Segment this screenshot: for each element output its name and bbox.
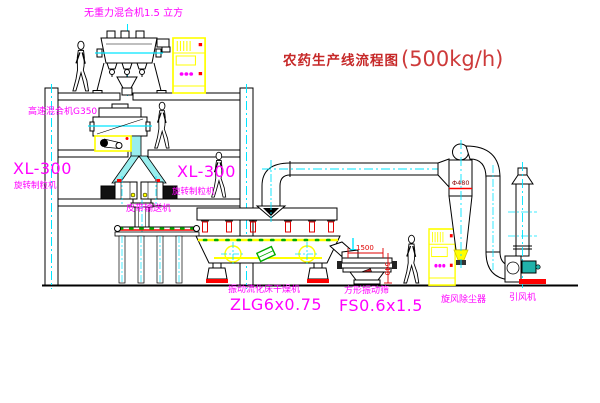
cyclone-diameter-annotation: Φ480 [452, 180, 470, 187]
sieve-length-dimension: 1500 [356, 245, 374, 252]
drawing-title: 农药生产线流程图(500kg/h) [283, 47, 503, 71]
label-second-mixer: 高速混合机G350 [28, 108, 97, 117]
zero-gravity-mixer [93, 24, 170, 96]
label-top-mixer: 无重力混合机1.5 立方 [84, 9, 183, 19]
fluid-bed-dryer [196, 208, 358, 283]
label-granulator-right-name: 旋转制粒机 [172, 188, 215, 197]
control-cabinet-ground [429, 229, 455, 285]
control-cabinet-upper [173, 38, 205, 93]
high-speed-mixer [88, 104, 152, 157]
label-belt-conveyor: 皮带输送机 [126, 205, 171, 214]
label-fan: 引风机 [509, 294, 536, 303]
sieve-height-dimension: 540 [383, 262, 390, 275]
belt-conveyor [115, 226, 200, 285]
title-text: 农药生产线流程图 [283, 49, 399, 69]
label-sieve-name: 方形振动筛 [344, 287, 389, 296]
label-dryer-model: ZLG6x0.75 [230, 297, 322, 313]
label-granulator-right-model: XL-300 [177, 164, 236, 180]
label-granulator-left-model: XL-300 [13, 161, 72, 177]
worker-figure [73, 41, 89, 91]
label-sieve-model: FS0.6x1.5 [339, 298, 423, 314]
cad-drawing: 农药生产线流程图(500kg/h) 无重力混合机1.5 立方 高速混合机G350… [0, 0, 600, 403]
worker-figure [155, 102, 169, 148]
y-chute [112, 156, 166, 183]
stack-and-fan [486, 162, 546, 288]
label-granulator-left-name: 旋转制粒机 [14, 182, 57, 191]
label-cyclone: 旋风除尘器 [441, 296, 486, 305]
label-dryer-name: 振动流化床干燥机 [228, 286, 300, 295]
worker-figure [404, 235, 419, 283]
title-capacity: (500kg/h) [401, 47, 503, 71]
